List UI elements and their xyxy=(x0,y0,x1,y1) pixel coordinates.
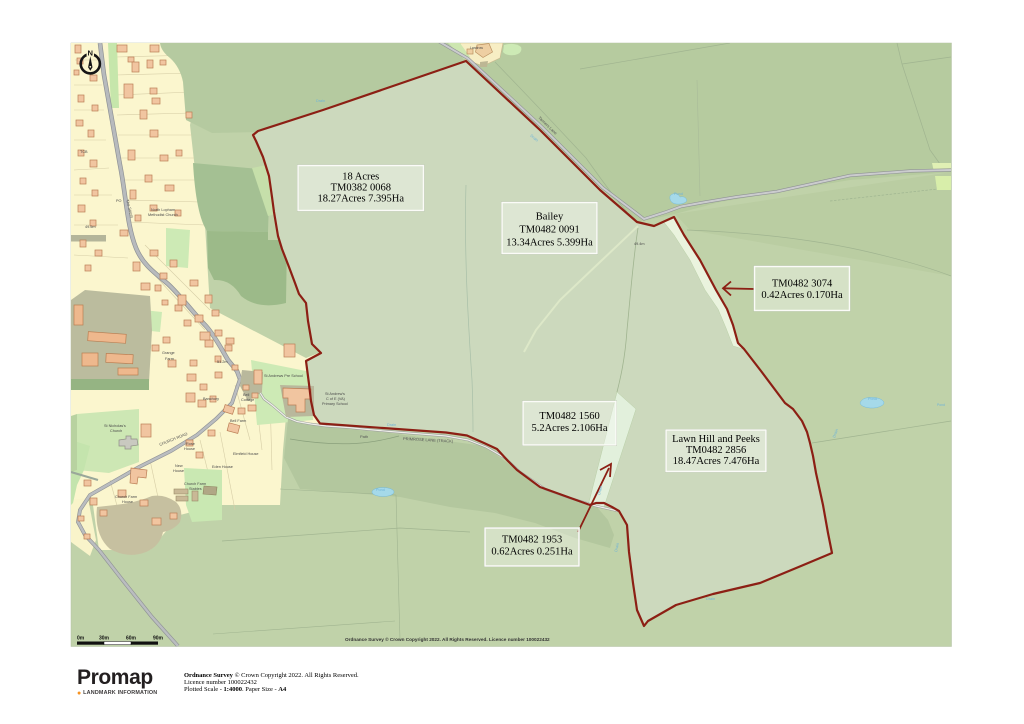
svg-text:49.5m: 49.5m xyxy=(85,225,96,229)
svg-text:TM0482 2856: TM0482 2856 xyxy=(686,445,746,456)
svg-text:Pond: Pond xyxy=(868,397,877,401)
svg-text:Elmfield House: Elmfield House xyxy=(233,452,259,456)
svg-text:House: House xyxy=(184,447,195,451)
svg-text:New: New xyxy=(175,464,183,468)
svg-text:Drain: Drain xyxy=(316,99,325,103)
svg-text:TM0482 1953: TM0482 1953 xyxy=(502,535,562,546)
svg-text:House: House xyxy=(122,500,133,504)
svg-text:St Andrew's: St Andrew's xyxy=(325,392,345,396)
svg-text:North Lopham: North Lopham xyxy=(151,208,175,212)
svg-text:18.27Acres 7.395Ha: 18.27Acres 7.395Ha xyxy=(317,194,404,205)
svg-text:TM0482 0091: TM0482 0091 xyxy=(519,225,579,236)
svg-text:0.62Acres 0.251Ha: 0.62Acres 0.251Ha xyxy=(491,547,573,558)
svg-text:51.2m: 51.2m xyxy=(217,360,228,364)
svg-text:PO: PO xyxy=(116,199,122,203)
svg-text:TM0482 3074: TM0482 3074 xyxy=(772,279,833,290)
svg-text:Cottage: Cottage xyxy=(241,398,254,402)
svg-text:Drain: Drain xyxy=(387,423,396,427)
svg-text:5.2Acres 2.106Ha: 5.2Acres 2.106Ha xyxy=(531,423,607,434)
svg-text:0.42Acres 0.170Ha: 0.42Acres 0.170Ha xyxy=(761,290,843,301)
svg-text:Church Farm: Church Farm xyxy=(115,495,137,499)
svg-text:Rose: Rose xyxy=(186,442,195,446)
svg-text:18.47Acres 7.476Ha: 18.47Acres 7.476Ha xyxy=(673,456,760,467)
svg-text:Pond: Pond xyxy=(937,403,945,407)
svg-text:Banchory: Banchory xyxy=(203,397,219,401)
svg-text:N: N xyxy=(88,49,93,58)
svg-text:Drain: Drain xyxy=(706,597,715,601)
svg-text:Ordnance Survey © Crown Copyri: Ordnance Survey © Crown Copyright 2022. … xyxy=(345,636,550,642)
svg-text:Landrow: Landrow xyxy=(470,46,484,50)
svg-text:St Andrews Pre School: St Andrews Pre School xyxy=(264,374,303,378)
svg-text:St Nicholas's: St Nicholas's xyxy=(104,424,126,428)
svg-text:Lawn Hill and Peeks: Lawn Hill and Peeks xyxy=(672,434,760,445)
svg-text:C of E (VA): C of E (VA) xyxy=(326,397,346,401)
svg-text:30m: 30m xyxy=(99,636,110,642)
svg-text:13.34Acres 5.399Ha: 13.34Acres 5.399Ha xyxy=(506,238,593,249)
svg-text:House: House xyxy=(173,469,184,473)
svg-text:TM0482 1560: TM0482 1560 xyxy=(539,411,599,422)
svg-text:90m: 90m xyxy=(153,636,164,642)
svg-text:TCB: TCB xyxy=(80,150,88,154)
svg-text:TM0382 0068: TM0382 0068 xyxy=(331,183,391,194)
svg-text:0m: 0m xyxy=(77,636,85,642)
svg-text:Farm: Farm xyxy=(165,357,174,361)
svg-text:Pond: Pond xyxy=(376,488,385,492)
svg-text:Stables: Stables xyxy=(189,487,202,491)
svg-text:Pond: Pond xyxy=(674,192,683,196)
svg-text:Church: Church xyxy=(110,429,122,433)
svg-text:Bell Farm: Bell Farm xyxy=(230,419,246,423)
svg-text:Path: Path xyxy=(360,434,368,439)
svg-text:Methodist Church: Methodist Church xyxy=(148,213,178,217)
svg-text:Bailey: Bailey xyxy=(536,212,564,223)
svg-text:Church Farm: Church Farm xyxy=(184,482,206,486)
svg-text:60m: 60m xyxy=(126,636,137,642)
svg-text:Eden House: Eden House xyxy=(212,465,233,469)
svg-text:18 Acres: 18 Acres xyxy=(342,172,379,183)
svg-text:Bell: Bell xyxy=(243,393,249,397)
svg-text:Primary School: Primary School xyxy=(322,402,348,406)
svg-text:49.4m: 49.4m xyxy=(634,242,645,246)
svg-text:Grange: Grange xyxy=(162,351,175,355)
